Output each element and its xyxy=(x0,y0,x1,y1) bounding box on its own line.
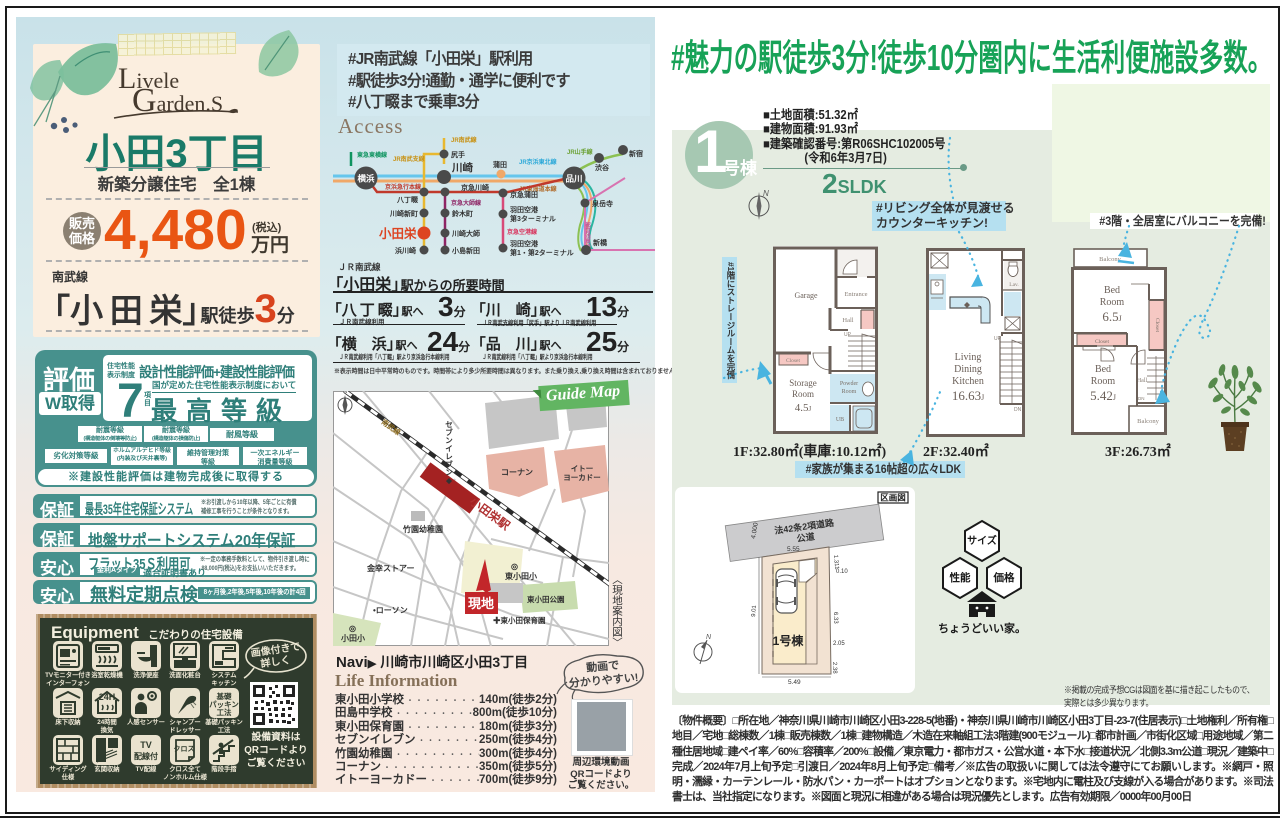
svg-text:価格: 価格 xyxy=(993,571,1015,584)
svg-text:京急川崎: 京急川崎 xyxy=(461,183,489,192)
svg-text:小島新田: 小島新田 xyxy=(451,246,480,255)
svg-text:JR南武支線: JR南武支線 xyxy=(393,155,425,163)
svg-text:現地: 現地 xyxy=(468,596,494,611)
svg-text:配線付: 配線付 xyxy=(134,751,158,761)
svg-text:東小田小: 東小田小 xyxy=(505,571,537,581)
svg-text:JR南武線: JR南武線 xyxy=(451,136,477,144)
svg-text:浜川崎: 浜川崎 xyxy=(395,246,416,255)
svg-text:羽田空港: 羽田空港 xyxy=(510,239,539,248)
svg-text:第3ターミナル: 第3ターミナル xyxy=(510,214,556,223)
svg-text:渋谷: 渋谷 xyxy=(595,163,610,172)
svg-text:性能: 性能 xyxy=(950,571,971,584)
svg-text:ヨーカドー: ヨーカドー xyxy=(563,473,601,482)
svg-text:TV: TV xyxy=(140,740,152,750)
svg-text:八丁畷: 八丁畷 xyxy=(396,195,419,204)
svg-text:ちょうどいい家。: ちょうどいい家。 xyxy=(938,621,1026,635)
svg-text:川崎大師: 川崎大師 xyxy=(451,229,480,238)
svg-text:小田小: 小田小 xyxy=(340,633,365,643)
svg-text:◎: ◎ xyxy=(511,562,518,571)
svg-text:東小田公園: 東小田公園 xyxy=(527,594,565,604)
svg-text:9.01: 9.01 xyxy=(751,604,758,617)
svg-text:JR山手線: JR山手線 xyxy=(567,148,593,156)
svg-text:川崎新町: 川崎新町 xyxy=(389,209,418,218)
svg-text:◎: ◎ xyxy=(349,624,356,633)
svg-text:N: N xyxy=(343,391,347,395)
svg-text:24H: 24H xyxy=(99,692,116,702)
svg-text:区画図: 区画図 xyxy=(880,493,906,503)
svg-text:尻手: 尻手 xyxy=(451,150,465,159)
svg-text:川崎: 川崎 xyxy=(451,161,473,174)
svg-text:サイズ: サイズ xyxy=(967,534,997,547)
svg-text:5.55: 5.55 xyxy=(787,546,800,553)
svg-text:小田栄: 小田栄 xyxy=(378,226,417,241)
svg-text:イトー: イトー xyxy=(571,464,594,473)
svg-text:竹園幼稚園: 竹園幼稚園 xyxy=(402,524,443,534)
svg-text:6.33: 6.33 xyxy=(832,612,838,625)
svg-text:東急東横線: 東急東横線 xyxy=(357,151,387,159)
svg-text:クロス: クロス xyxy=(174,744,195,753)
svg-text:動画で: 動画で xyxy=(586,658,620,675)
svg-text:京急大師線: 京急大師線 xyxy=(451,199,481,207)
svg-text:京急蒲田: 京急蒲田 xyxy=(510,190,538,199)
svg-text:JR京浜東北線: JR京浜東北線 xyxy=(519,158,557,166)
svg-text:蒲田: 蒲田 xyxy=(493,160,507,169)
svg-text:2.05: 2.05 xyxy=(833,641,845,647)
svg-text:5.49: 5.49 xyxy=(788,679,801,686)
svg-text:羽田空港: 羽田空港 xyxy=(510,205,539,214)
svg-text:1号棟: 1号棟 xyxy=(773,633,805,648)
svg-text:泉岳寺: 泉岳寺 xyxy=(592,199,613,208)
svg-text:金幸ストアー: 金幸ストアー xyxy=(366,563,415,573)
svg-text:コーナン: コーナン xyxy=(501,468,533,477)
svg-text:品川: 品川 xyxy=(565,174,582,184)
svg-text:0.10: 0.10 xyxy=(836,569,848,575)
svg-text:•ローソン: •ローソン xyxy=(373,606,408,615)
svg-text:横浜: 横浜 xyxy=(356,174,375,184)
svg-text:工法: 工法 xyxy=(217,707,232,717)
svg-text:✚東小田保育園: ✚東小田保育園 xyxy=(493,615,546,625)
svg-text:新宿: 新宿 xyxy=(629,149,643,158)
svg-text:京急空港線: 京急空港線 xyxy=(507,228,537,236)
svg-text:新橋: 新橋 xyxy=(593,238,608,247)
svg-text:2.38: 2.38 xyxy=(831,662,837,675)
svg-text:鈴木町: 鈴木町 xyxy=(452,209,473,218)
svg-text:京浜急行本線: 京浜急行本線 xyxy=(385,183,421,191)
svg-text:第1・第2ターミナル: 第1・第2ターミナル xyxy=(510,248,574,257)
